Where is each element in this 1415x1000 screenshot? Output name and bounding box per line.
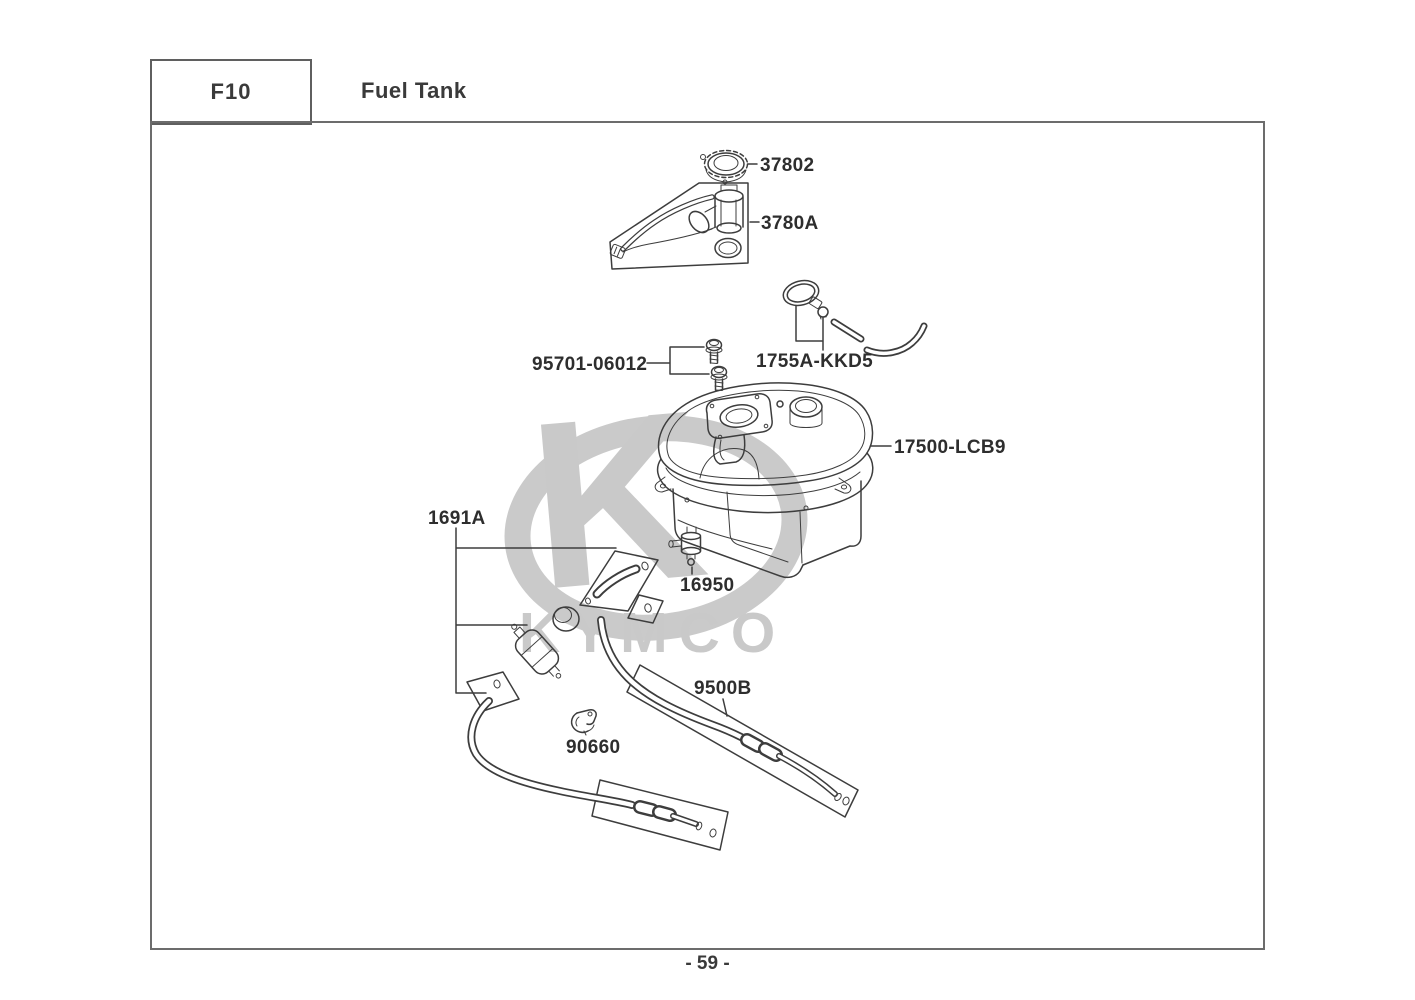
exploded-view-diagram xyxy=(0,0,1415,1000)
fuel-filler-cap-drawing xyxy=(701,151,758,183)
part-label-fuel-pump-unit: 3780A xyxy=(761,213,819,235)
fuel-hose-drawing xyxy=(601,595,858,817)
fuel-cock-drawing xyxy=(669,527,701,574)
fuel-pump-unit-drawing xyxy=(610,180,759,269)
clamp-and-tube-set-drawing xyxy=(781,277,924,353)
part-label-filter-tube-set: 1691A xyxy=(428,508,486,530)
part-label-clamp-tube-set: 1755A-KKD5 xyxy=(756,351,873,373)
part-label-fuel-tank-body: 17500-LCB9 xyxy=(894,437,1006,459)
part-label-fuel-hose: 9500B xyxy=(694,678,752,700)
part-label-flange-bolts: 95701-06012 xyxy=(532,354,647,376)
part-label-fuel-filler-cap: 37802 xyxy=(760,155,814,177)
flange-bolts-drawing xyxy=(647,340,727,391)
part-label-fuel-cock: 16950 xyxy=(680,575,734,597)
hose-clip-drawing xyxy=(572,710,597,735)
page-number: - 59 - xyxy=(0,953,1415,975)
catalog-page: { "header": { "section_code": "F10", "se… xyxy=(0,0,1415,1000)
part-label-hose-clip: 90660 xyxy=(566,737,620,759)
